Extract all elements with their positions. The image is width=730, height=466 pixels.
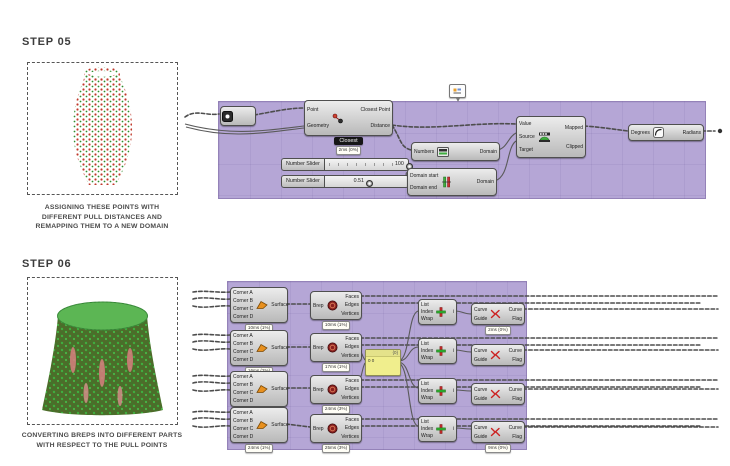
list-item-1-input-index[interactable]: Index [421, 309, 433, 315]
surface-component-4-profiler-tooltip: 24ms (1%) [245, 444, 273, 453]
surface-component-4-input-corner-b[interactable]: Corner B [233, 418, 253, 424]
flip-curve-3-input-guide[interactable]: Guide [474, 396, 487, 402]
remap-icon [537, 117, 552, 157]
closest-point-component[interactable]: PointGeometryClosest PointDistanceCloses… [304, 100, 393, 155]
flip-curve-4-output-flag[interactable]: Flag [509, 434, 522, 440]
flip-curve-3-output-curve[interactable]: Curve [509, 387, 522, 393]
flip-curve-1-input-guide[interactable]: Guide [474, 316, 487, 322]
list-item-icon [435, 300, 447, 324]
step6-heading: STEP 06 [22, 258, 71, 270]
closest-point-component-output-distance[interactable]: Distance [361, 123, 390, 129]
closest-point-component-input-geometry[interactable]: Geometry [307, 123, 329, 129]
number-slider-1-label: Number Slider [281, 158, 325, 171]
bounds-icon [436, 143, 450, 160]
step5-caption-line3: REMAPPING THEM TO A NEW DOMAIN [4, 222, 200, 232]
remap-numbers-component-input-target[interactable]: Target [519, 147, 535, 153]
surface-component-2-input-corner-b[interactable]: Corner B [233, 341, 253, 347]
data-panel[interactable]: {0}0 0 [365, 349, 401, 376]
surface-icon [255, 372, 269, 406]
degrees-radians-component[interactable]: DegreesRadians [628, 124, 704, 141]
flip-curve-1-profiler-tooltip: 2ms (0%) [485, 326, 511, 335]
surface-component-4-input-corner-d[interactable]: Corner D [233, 434, 253, 440]
mesh-cone-image [28, 278, 177, 424]
flip-icon [489, 304, 502, 324]
list-item-4[interactable]: ListIndexWrapi [418, 416, 457, 442]
list-item-1[interactable]: ListIndexWrapi [418, 299, 457, 325]
list-item-4-output-i[interactable]: i [453, 426, 454, 432]
construct-domain-component-output-domain[interactable]: Domain [477, 179, 494, 185]
number-slider-2-handle[interactable] [366, 180, 373, 187]
degrees-radians-component-output-radians[interactable]: Radians [683, 130, 701, 136]
list-item-icon [435, 379, 447, 403]
surface-component-3-input-corner-d[interactable]: Corner D [233, 398, 253, 404]
list-item-3[interactable]: ListIndexWrapi [418, 378, 457, 404]
surface-component-2-input-corner-d[interactable]: Corner D [233, 357, 253, 363]
list-item-2[interactable]: ListIndexWrapi [418, 338, 457, 364]
number-slider-2-track[interactable]: 0.51 [325, 175, 409, 188]
construct-domain-component-input-domain-start[interactable]: Domain start [410, 173, 438, 179]
deconstruct-brep-2-output-vertices[interactable]: Vertices [341, 353, 359, 359]
remap-numbers-component-output-clipped[interactable]: Clipped [565, 144, 583, 150]
flip-icon [489, 345, 502, 365]
flip-curve-2-output-curve[interactable]: Curve [509, 348, 522, 354]
bounds-component-input-numbers[interactable]: Numbers [414, 149, 434, 155]
list-item-2-output-i[interactable]: i [453, 348, 454, 354]
deconstruct-brep-2-output-faces[interactable]: Faces [341, 336, 359, 342]
surface-component-1-output-surface[interactable]: Surface [271, 302, 288, 308]
flip-icon [489, 422, 502, 442]
surface-component-3-input-corner-c[interactable]: Corner C [233, 390, 253, 396]
vase-point-cloud-image [28, 63, 177, 194]
tag-icon [449, 84, 466, 98]
deconstruct-brep-4[interactable]: BrepFacesEdgesVertices25ms (3%) [310, 414, 362, 453]
deconstruct-brep-1-output-faces[interactable]: Faces [341, 294, 359, 300]
flip-icon [489, 384, 502, 404]
list-item-4-input-wrap[interactable]: Wrap [421, 433, 433, 439]
deconstruct-brep-2-input-brep[interactable]: Brep [313, 345, 324, 351]
flip-curve-1-output-curve[interactable]: Curve [509, 307, 522, 313]
point-icon [221, 107, 234, 125]
flip-curve-2-input-guide[interactable]: Guide [474, 357, 487, 363]
remap-numbers-component-input-source[interactable]: Source [519, 134, 535, 140]
step6-caption-line2: WITH RESPECT TO THE PULL POINTS [4, 441, 200, 451]
surface-component-4[interactable]: Corner ACorner BCorner CCorner DSurface2… [230, 407, 288, 453]
number-slider-2-label: Number Slider [281, 175, 325, 188]
deconstruct-brep-1-input-brep[interactable]: Brep [313, 303, 324, 309]
step5-image-frame [27, 62, 178, 195]
surface-component-3-output-surface[interactable]: Surface [271, 386, 288, 392]
data-panel-content: 0 0 [366, 357, 400, 365]
remap-numbers-component[interactable]: ValueSourceTargetMappedClipped [516, 116, 586, 158]
number-slider-1-track[interactable]: 100 [325, 158, 409, 171]
flip-curve-2-output-flag[interactable]: Flag [509, 357, 522, 363]
number-slider-1[interactable]: Number Slider100 [281, 158, 409, 171]
surface-component-2-input-corner-a[interactable]: Corner A [233, 333, 253, 339]
list-item-3-input-index[interactable]: Index [421, 388, 433, 394]
surface-component-1-input-corner-b[interactable]: Corner B [233, 298, 253, 304]
list-item-4-input-index[interactable]: Index [421, 426, 433, 432]
deconstruct-brep-4-output-vertices[interactable]: Vertices [341, 434, 359, 440]
surface-component-2-input-corner-c[interactable]: Corner C [233, 349, 253, 355]
closest-point-component-output-closest-point[interactable]: Closest Point [361, 107, 390, 113]
number-slider-2[interactable]: Number Slider0.51 [281, 175, 409, 188]
deconstruct-brep-1[interactable]: BrepFacesEdgesVertices10ms (1%) [310, 291, 362, 330]
deconstruct-brep-4-input-brep[interactable]: Brep [313, 426, 324, 432]
deconstruct-brep-2[interactable]: BrepFacesEdgesVertices17ms (1%) [310, 333, 362, 372]
step5-caption-line2: DIFFERENT PULL DISTANCES AND [4, 213, 200, 223]
deconstruct-brep-4-output-edges[interactable]: Edges [341, 425, 359, 431]
closest-point-component-input-point[interactable]: Point [307, 107, 329, 113]
wire-end-dot [718, 129, 722, 133]
step5-caption: ASSIGNING THESE POINTS WITH DIFFERENT PU… [4, 203, 200, 232]
list-item-icon [435, 339, 447, 363]
flip-curve-4-output-curve[interactable]: Curve [509, 425, 522, 431]
bounds-component[interactable]: NumbersDomain [411, 142, 500, 161]
flip-curve-3[interactable]: CurveGuideCurveFlag [471, 383, 525, 405]
flip-curve-2[interactable]: CurveGuideCurveFlag [471, 344, 525, 366]
flip-curve-4-input-curve[interactable]: Curve [474, 425, 487, 431]
surface-component-1[interactable]: Corner ACorner BCorner CCorner DSurface1… [230, 287, 288, 333]
number-slider-2-value: 0.51 [354, 176, 364, 187]
deconstruct-brep-3-output-edges[interactable]: Edges [341, 386, 359, 392]
construct-domain-component[interactable]: Domain startDomain endDomain [407, 168, 497, 196]
list-item-3-input-wrap[interactable]: Wrap [421, 395, 433, 401]
step5-caption-line1: ASSIGNING THESE POINTS WITH [4, 203, 200, 213]
remap-numbers-component-input-value[interactable]: Value [519, 121, 535, 127]
list-item-4-input-list[interactable]: List [421, 419, 433, 425]
deconstruct-brep-3-input-brep[interactable]: Brep [313, 387, 324, 393]
list-item-2-input-wrap[interactable]: Wrap [421, 355, 433, 361]
deconstruct-brep-1-profiler-tooltip: 10ms (1%) [322, 321, 350, 330]
step5-heading: STEP 05 [22, 36, 71, 48]
step6-caption-line1: CONVERTING BREPS INTO DIFFERENT PARTS [4, 431, 200, 441]
surface-component-1-input-corner-c[interactable]: Corner C [233, 306, 253, 312]
closest-point-icon [331, 101, 344, 135]
surface-icon [255, 288, 269, 322]
construct-domain-component-input-domain-end[interactable]: Domain end [410, 185, 438, 191]
list-item-icon [435, 417, 447, 441]
surface-icon [255, 331, 269, 365]
deconstruct-brep-4-profiler-tooltip: 25ms (3%) [322, 444, 350, 453]
surface-component-4-input-corner-a[interactable]: Corner A [233, 410, 253, 416]
deconstruct-brep-2-profiler-tooltip: 17ms (1%) [322, 363, 350, 372]
construct-domain-icon [440, 169, 453, 195]
flip-curve-4-input-guide[interactable]: Guide [474, 434, 487, 440]
deconstruct-brep-1-output-vertices[interactable]: Vertices [341, 311, 359, 317]
surface-component-3-input-corner-a[interactable]: Corner A [233, 374, 253, 380]
list-item-1-input-wrap[interactable]: Wrap [421, 316, 433, 322]
flip-curve-1-output-flag[interactable]: Flag [509, 316, 522, 322]
flip-curve-1-input-curve[interactable]: Curve [474, 307, 487, 313]
number-slider-1-value: 100 [395, 159, 404, 170]
point-param[interactable] [220, 106, 256, 126]
remap-numbers-component-output-mapped[interactable]: Mapped [565, 125, 583, 131]
flip-curve-4-profiler-tooltip: 9ms (0%) [485, 444, 511, 453]
step6-caption: CONVERTING BREPS INTO DIFFERENT PARTS WI… [4, 431, 200, 450]
deconstruct-brep-3-output-vertices[interactable]: Vertices [341, 395, 359, 401]
brep-icon [326, 415, 339, 442]
deconstruct-brep-3-output-faces[interactable]: Faces [341, 378, 359, 384]
flip-curve-1[interactable]: CurveGuideCurveFlag2ms (0%) [471, 303, 525, 335]
closest-point-component-profiler-tooltip: 2ms (0%) [336, 146, 362, 155]
surface-component-1-input-corner-a[interactable]: Corner A [233, 290, 253, 296]
flip-curve-3-output-flag[interactable]: Flag [509, 396, 522, 402]
flip-curve-4[interactable]: CurveGuideCurveFlag9ms (0%) [471, 421, 525, 453]
surface-icon [255, 408, 269, 442]
surface-component-2-output-surface[interactable]: Surface [271, 345, 288, 351]
deconstruct-brep-1-output-edges[interactable]: Edges [341, 302, 359, 308]
closest-point-component-nickname: Closest [334, 137, 362, 145]
deconstruct-brep-3-profiler-tooltip: 24ms (3%) [322, 405, 350, 414]
group-tag[interactable] [449, 84, 466, 102]
step6-image-frame [27, 277, 178, 425]
degrees-radians-component-input-degrees[interactable]: Degrees [631, 130, 650, 136]
deconstruct-brep-2-output-edges[interactable]: Edges [341, 344, 359, 350]
group-tag-pointer [456, 98, 460, 102]
brep-icon [326, 376, 339, 403]
brep-icon [326, 292, 339, 319]
surface-component-2[interactable]: Corner ACorner BCorner CCorner DSurface1… [230, 330, 288, 376]
bounds-component-output-domain[interactable]: Domain [480, 149, 497, 155]
list-item-2-input-list[interactable]: List [421, 341, 433, 347]
surface-component-1-input-corner-d[interactable]: Corner D [233, 314, 253, 320]
number-slider-1-ticks [329, 163, 394, 166]
flip-curve-3-input-curve[interactable]: Curve [474, 387, 487, 393]
surface-component-4-input-corner-c[interactable]: Corner C [233, 426, 253, 432]
list-item-1-output-i[interactable]: i [453, 309, 454, 315]
data-panel-path: {0} [366, 350, 400, 357]
surface-component-3-input-corner-b[interactable]: Corner B [233, 382, 253, 388]
list-item-2-input-index[interactable]: Index [421, 348, 433, 354]
flip-curve-2-input-curve[interactable]: Curve [474, 348, 487, 354]
list-item-3-output-i[interactable]: i [453, 388, 454, 394]
tutorial-page: STEP 05 ASSIGNING THESE POINTS WITH DIFF… [0, 0, 730, 466]
degrees-icon [652, 125, 665, 140]
list-item-1-input-list[interactable]: List [421, 302, 433, 308]
list-item-3-input-list[interactable]: List [421, 381, 433, 387]
deconstruct-brep-4-output-faces[interactable]: Faces [341, 417, 359, 423]
deconstruct-brep-3[interactable]: BrepFacesEdgesVertices24ms (3%) [310, 375, 362, 414]
brep-icon [326, 334, 339, 361]
surface-component-4-output-surface[interactable]: Surface [271, 422, 288, 428]
